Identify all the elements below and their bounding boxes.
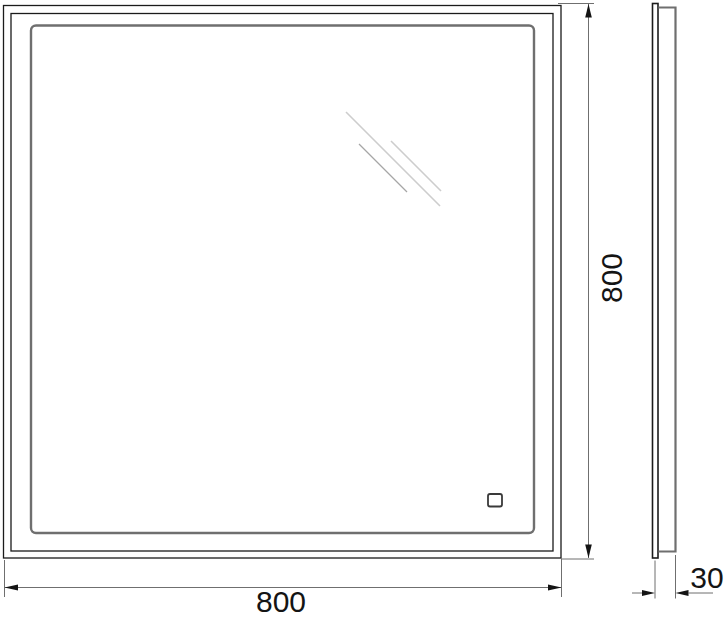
width-arrow-right-icon [548, 584, 562, 590]
side-body-outline [659, 8, 676, 552]
width-dimension-label: 800 [256, 585, 306, 618]
drawing-svg: 800 800 30 [0, 0, 726, 622]
mirror-technical-drawing: 800 800 30 [0, 0, 726, 622]
depth-arrow-right-icon [642, 590, 655, 596]
glare-line-short [359, 144, 407, 192]
height-dimension: 800 [558, 4, 628, 560]
glare-line-long [346, 112, 440, 206]
height-arrow-down-icon [585, 545, 592, 559]
width-arrow-left-icon [5, 584, 19, 590]
width-dimension: 800 [5, 559, 562, 619]
front-view [4, 6, 562, 559]
touch-sensor-button [488, 494, 502, 507]
depth-dimension: 30 [632, 555, 724, 599]
height-arrow-up-icon [585, 4, 592, 18]
front-outer-frame [4, 6, 562, 559]
front-inner-led-frame [31, 26, 534, 534]
depth-arrow-left-icon [676, 590, 689, 596]
front-mid-frame [11, 14, 553, 552]
side-glass-edge [653, 4, 659, 559]
depth-dimension-label: 30 [690, 561, 723, 594]
side-profile-view [653, 4, 676, 559]
height-dimension-label: 800 [595, 253, 628, 303]
